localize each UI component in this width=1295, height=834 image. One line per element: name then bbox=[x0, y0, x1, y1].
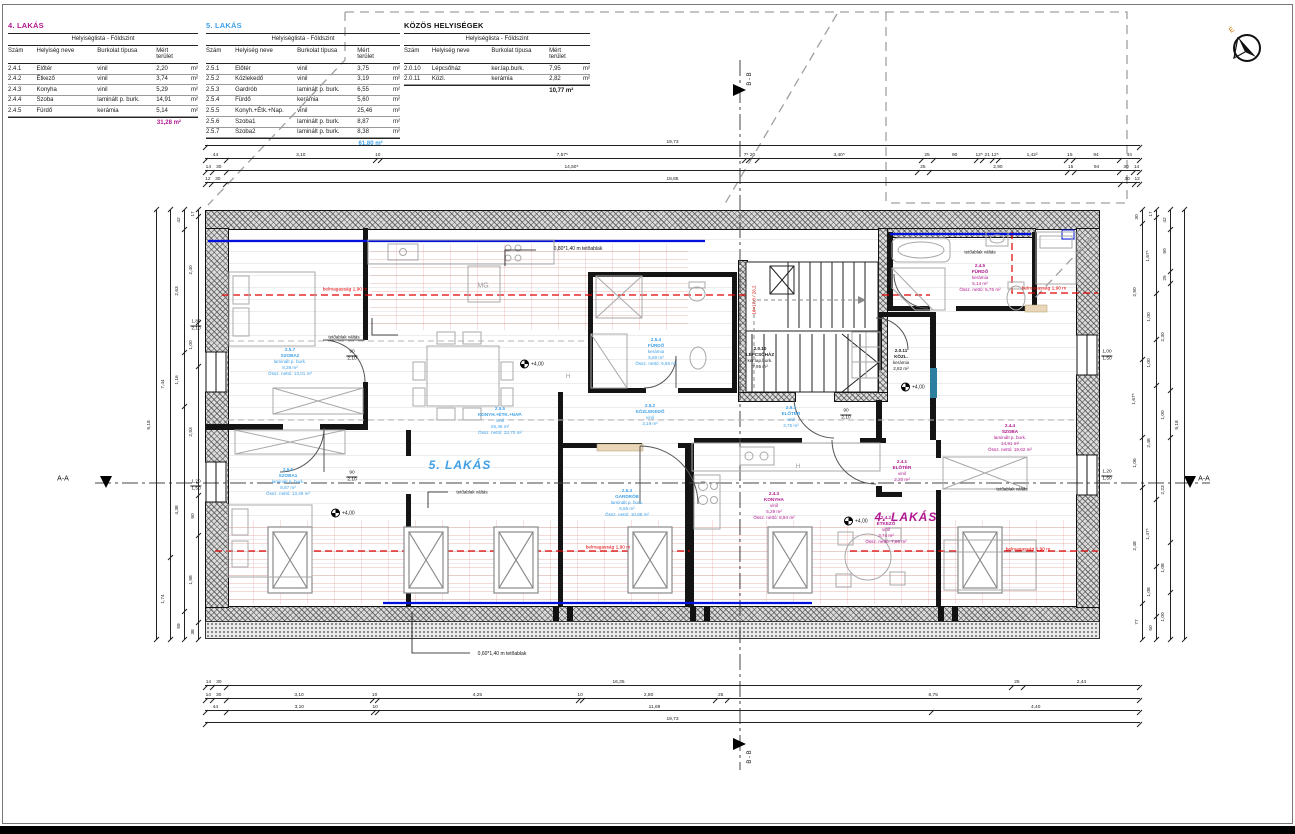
dimension-segment: 14,50⁵ bbox=[226, 161, 917, 171]
dimension-chain: 19,73 bbox=[205, 713, 1140, 722]
dimension-segment: 30 bbox=[212, 676, 226, 686]
table-row: 2.5.1Előtérvinil3,75m² bbox=[206, 64, 400, 75]
annotation: belmagasság 1,90 m bbox=[323, 288, 368, 293]
table-cell: vinil bbox=[97, 76, 156, 83]
table-cell: vinil bbox=[297, 66, 357, 73]
column-header: Mért terület bbox=[357, 48, 384, 61]
room-detail: Össz. nettó: 8,94 m² bbox=[753, 515, 794, 521]
room-label: 2.4.5FÜRDŐkerámia5,14 m²Össz. nettó: 5,7… bbox=[959, 263, 1000, 293]
dimension-segment: 15 bbox=[1067, 161, 1074, 171]
dimension-segment: 1,08 bbox=[1160, 543, 1171, 594]
teal-window-fill bbox=[930, 368, 937, 398]
toilet bbox=[689, 287, 705, 301]
room-detail: 2,82 m² bbox=[893, 366, 909, 372]
table-total: 31,28 m² bbox=[8, 117, 198, 127]
dimension-chain-vertical: 4290252,301,002,231,081,00 bbox=[1160, 210, 1170, 640]
table-cell: 5,29 bbox=[156, 87, 183, 94]
table-row: 2.4.5Fürdőkerámia5,14m² bbox=[8, 106, 198, 117]
dimension-segment: 3,10 bbox=[226, 689, 372, 699]
opening-width: 1,80 bbox=[190, 320, 201, 326]
table-cell: 5,60 bbox=[357, 97, 384, 104]
dimension-value: 1,06 bbox=[1133, 458, 1138, 467]
dimension-segment: 44 bbox=[205, 149, 226, 159]
opening-dimension: 902,10 bbox=[840, 409, 851, 422]
dimension-value: 15 bbox=[1068, 165, 1073, 170]
dimension-value: 14 bbox=[206, 693, 211, 698]
opening-dimension: 902,10 bbox=[346, 471, 357, 484]
dimension-value: 30 bbox=[215, 177, 220, 182]
dimension-segment: 14 bbox=[205, 161, 212, 171]
table-row: 2.0.11Közl.kerámia2,82m² bbox=[404, 75, 590, 86]
bottom-black-bar bbox=[0, 826, 1295, 834]
table-cell: Étkező bbox=[37, 76, 98, 83]
dimension-value: 14 bbox=[1134, 165, 1139, 170]
dimension-chain: 443,101011,694,40 bbox=[205, 701, 1140, 710]
dimension-segment: 38 bbox=[188, 623, 199, 640]
table-cell: 2.5.5 bbox=[206, 108, 235, 115]
opening-height: 1,50 bbox=[1101, 476, 1112, 483]
column-header: Burkolat típusa bbox=[297, 48, 357, 61]
lintel-strip-2 bbox=[1025, 305, 1047, 312]
table-subtitle: Helyiséglista - Földszint bbox=[404, 33, 590, 46]
dimension-segment: 16,35 bbox=[226, 676, 1011, 686]
dimension-segment: 7,44 bbox=[160, 210, 171, 558]
table-subtitle: Helyiséglista - Földszint bbox=[8, 33, 198, 46]
dimension-value: 1,00 bbox=[1161, 612, 1166, 621]
table-cell: laminált p. burk. bbox=[297, 87, 357, 94]
room-label: 2.5.7SZOBA2laminált p. burk.8,38 m²Össz.… bbox=[268, 347, 312, 377]
dimension-segment: 3,10 bbox=[226, 149, 375, 159]
table-row: 2.5.6Szoba1laminált p. burk.8,87m² bbox=[206, 117, 400, 128]
dimension-value: 2,63 bbox=[175, 287, 180, 296]
table-header-row: SzámHelyiség neveBurkolat típusaMért ter… bbox=[206, 46, 400, 64]
table-cell: Közl. bbox=[432, 76, 492, 83]
dimension-segment: 25 bbox=[921, 149, 933, 159]
dimension-segment: 2,90 bbox=[929, 161, 1067, 171]
dimension-segment: 4,25 bbox=[377, 689, 578, 699]
elevation-marker: +4,00 bbox=[520, 360, 544, 369]
dimension-value: 11,69 bbox=[649, 705, 661, 710]
dimension-chain: 123018,853012 bbox=[205, 173, 1140, 182]
table-cell: 2.4.1 bbox=[8, 66, 37, 73]
dimension-value: 44 bbox=[213, 153, 218, 158]
dimension-value: 1,67⁵ bbox=[1132, 393, 1137, 404]
room-label: 2.4.2ÉTKEZŐvinil3,74 m²Össz. nettó: 7,86… bbox=[865, 515, 906, 545]
table-cell: Lépcsőház bbox=[432, 66, 492, 73]
table-total: 10,77 m² bbox=[404, 85, 590, 95]
table-cell: m² bbox=[384, 108, 400, 115]
table-cell: 2.4.4 bbox=[8, 97, 37, 104]
room-detail: 7,95 m² bbox=[746, 364, 774, 370]
table-cell: Gardrób bbox=[235, 87, 297, 94]
table-cell: 5,14 bbox=[156, 108, 183, 115]
dimension-segment: 50 bbox=[1146, 617, 1157, 640]
annotation: belmagasság 1,90 m bbox=[1022, 287, 1067, 292]
dimension-value: 19,73 bbox=[666, 140, 678, 145]
table-cell: Előtér bbox=[37, 66, 98, 73]
elevation-marker: +4,00 bbox=[331, 509, 355, 518]
dimension-value: 14 bbox=[206, 165, 211, 170]
table-title: 5. LAKÁS bbox=[206, 22, 400, 30]
table-cell: 2.0.10 bbox=[404, 66, 432, 73]
opening-dimension: 1,201,50 bbox=[1101, 470, 1112, 483]
room-label: 2.4.3KONYHAvinil5,29 m²Össz. nettó: 8,94… bbox=[753, 491, 794, 521]
table-row: 2.4.2Étkezővinil3,74m² bbox=[8, 75, 198, 86]
dimension-value: 18,85 bbox=[666, 177, 678, 182]
room-detail: Össz. nettó: 19,62 m² bbox=[988, 447, 1032, 453]
dimension-value: 90 bbox=[1163, 248, 1168, 253]
table-cell: Előtér bbox=[235, 66, 297, 73]
dimension-value: 4,38 bbox=[175, 505, 180, 514]
dimension-segment: 7,57⁵ bbox=[380, 149, 744, 159]
dimension-segment: 25 bbox=[1160, 272, 1171, 284]
table-cell: 6,55 bbox=[357, 87, 384, 94]
dimension-chain-vertical: 171,67⁵1,001,002,481,47⁵1,0850 bbox=[1146, 210, 1156, 640]
table-cell: vinil bbox=[97, 87, 156, 94]
annotation: A-A bbox=[57, 476, 69, 483]
dimension-value: 25 bbox=[924, 153, 929, 158]
dimension-value: 38 bbox=[191, 629, 196, 634]
dimension-segment: 1,08 bbox=[1146, 567, 1157, 617]
room-detail: Össz. nettó: 7,86 m² bbox=[865, 539, 906, 545]
table-cell: m² bbox=[384, 76, 400, 83]
dimension-segment: 1,00 bbox=[1160, 391, 1171, 438]
dimension-segment: 90 bbox=[188, 496, 199, 536]
annotation: belmagasság 1,90 m bbox=[1006, 548, 1051, 553]
dimension-segment: 1,67⁵ bbox=[1146, 218, 1157, 295]
room-detail: Össz. nettó: 10,88 m² bbox=[605, 512, 649, 518]
dimension-value: 17 bbox=[1149, 211, 1154, 216]
table-cell: 2.5.3 bbox=[206, 87, 235, 94]
dimension-value: 14,50⁵ bbox=[564, 165, 578, 170]
dimension-value: 1,08 bbox=[1161, 563, 1166, 572]
dimension-value: 2,40 bbox=[189, 266, 194, 275]
dimension-value: 94 bbox=[1093, 153, 1098, 158]
dimension-value: 7,44 bbox=[161, 380, 166, 389]
benchmark-icon bbox=[901, 383, 910, 392]
dimension-value: 3,10 bbox=[294, 693, 303, 698]
table-cell: Szoba bbox=[37, 97, 98, 104]
opening-height: 2,10 bbox=[346, 477, 357, 484]
dimension-segment: 11,69 bbox=[377, 701, 931, 711]
elevation-value: +4,00 bbox=[912, 384, 925, 390]
dimension-segment: 14 bbox=[205, 676, 212, 686]
annotation: 0,60*1,40 m tetőablak bbox=[478, 651, 527, 657]
room-label: 2.0.10LÉPCSŐHÁZker.lap.burk.7,95 m² bbox=[746, 346, 774, 370]
column-header: Mért terület bbox=[549, 48, 575, 61]
dimension-value: 1,00 bbox=[1147, 313, 1152, 322]
table-cell: m² bbox=[183, 66, 198, 73]
dimension-value: 2,90 bbox=[1133, 287, 1138, 296]
dimension-segment: 4,38 bbox=[174, 407, 185, 612]
dimension-value: 2,30 bbox=[1161, 333, 1166, 342]
dimension-segment: 9,18 bbox=[146, 210, 157, 640]
elevation-marker: +4,00 bbox=[901, 383, 925, 392]
room-detail: Össz. nettó: 6,55 m² bbox=[635, 361, 676, 367]
opening-height: 2,10 bbox=[190, 326, 201, 333]
dimension-value: 3,10 bbox=[295, 705, 304, 710]
column-header: Burkolat típusa bbox=[97, 48, 156, 61]
dimension-value: 9,18 bbox=[1175, 420, 1180, 429]
sink bbox=[690, 347, 706, 369]
dimension-value: 12 bbox=[1134, 177, 1139, 182]
room-label: 2.5.5KONYH.+ÉTK.+NAP.vinil25,46 m²Össz. … bbox=[478, 406, 522, 436]
dimension-value: 2,23 bbox=[1161, 486, 1166, 495]
opening-width: 1,00 bbox=[1101, 350, 1112, 356]
dimension-segment: 30 bbox=[1119, 161, 1133, 171]
dimension-value: 16,35 bbox=[612, 680, 624, 685]
dimension-chain-vertical: 422,631,164,3859 bbox=[174, 210, 184, 640]
room-label: 2.4.1ELŐTÉRvinil2,20 m² bbox=[893, 459, 912, 483]
dimension-segment: 25 bbox=[1011, 676, 1023, 686]
dimension-segment: 1,47⁵ bbox=[1146, 500, 1157, 567]
column-header bbox=[575, 48, 590, 61]
room-label: 2.5.4FÜRDŐkerámia5,60 m²Össz. nettó: 6,5… bbox=[635, 337, 676, 367]
column-header: Burkolat típusa bbox=[491, 48, 549, 61]
dimension-value: 77 bbox=[1135, 619, 1140, 624]
dimension-segment: 2,90 bbox=[1132, 224, 1143, 360]
dimension-segment: 30 bbox=[211, 173, 225, 183]
dimension-chain-vertical: 172,401,002,93901,9838 bbox=[188, 210, 198, 640]
dimension-value: 1,98 bbox=[189, 575, 194, 584]
dimension-value: 59 bbox=[177, 623, 182, 628]
column-header bbox=[384, 48, 400, 61]
dimension-segment: 25 bbox=[715, 689, 727, 699]
annotation: H bbox=[796, 464, 800, 470]
dimension-segment: 30 bbox=[212, 161, 226, 171]
table-cell: m² bbox=[384, 66, 400, 73]
drawing-sheet: É 4. LAKÁSHelyiséglista - FöldszintSzámH… bbox=[0, 0, 1295, 834]
table-title: 4. LAKÁS bbox=[8, 22, 198, 30]
dimension-segment: 2,40 bbox=[188, 217, 199, 323]
room-label: 2.5.6SZOBA1laminált p. burk.8,87 m²Össz.… bbox=[266, 467, 310, 497]
elevation-value: +4,00 bbox=[855, 518, 868, 524]
dimension-segment: 1,00 bbox=[1146, 340, 1157, 386]
table-row: 2.0.10Lépcsőházker.lap.burk.7,95m² bbox=[404, 64, 590, 75]
table-cell: m² bbox=[575, 76, 590, 83]
table-cell: 2.4.5 bbox=[8, 108, 37, 115]
table-cell: m² bbox=[183, 87, 198, 94]
dimension-segment: 19,73 bbox=[205, 713, 1140, 723]
table-cell: Szoba1 bbox=[235, 119, 297, 126]
dimension-segment: 30 bbox=[212, 689, 226, 699]
dimension-segment: 3,10 bbox=[226, 701, 373, 711]
table-row: 2.4.4Szobalaminált p. burk.14,91m² bbox=[8, 96, 198, 107]
column-header: Helyiség neve bbox=[235, 48, 297, 61]
dimension-segment: 94 bbox=[1073, 149, 1118, 159]
dimension-segment: 20 bbox=[748, 149, 758, 159]
table-cell: 2,20 bbox=[156, 66, 183, 73]
table-cell: vinil bbox=[97, 66, 156, 73]
dimension-chain: 143016,35252,44 bbox=[205, 676, 1140, 685]
dimension-segment: 2,30 bbox=[1160, 284, 1171, 392]
annotation: 16×17,8 / 26,2 bbox=[752, 286, 757, 315]
dimension-chain: 143014,50⁵252,9015943014 bbox=[205, 161, 1140, 170]
table-cell: Fürdő bbox=[37, 108, 98, 115]
dimension-segment: 15 bbox=[1066, 149, 1073, 159]
column-header: Szám bbox=[206, 48, 235, 61]
room-detail: Össz. nettó: 33,70 m² bbox=[478, 430, 522, 436]
table-cell: vinil bbox=[297, 76, 357, 83]
dimension-segment: 2,93 bbox=[188, 367, 199, 496]
dimension-value: 2,80 bbox=[644, 693, 653, 698]
dimension-segment: 2,80 bbox=[582, 689, 714, 699]
apartment-label: 5. LAKÁS bbox=[429, 458, 492, 472]
annotation: B - B bbox=[747, 750, 753, 763]
dimension-segment: 90 bbox=[933, 149, 976, 159]
dimension-value: 42 bbox=[177, 217, 182, 222]
dimension-chain-vertical: 9,18 bbox=[146, 210, 156, 640]
dimension-segment: 2,44 bbox=[1023, 676, 1140, 686]
opening-height: 2,10 bbox=[840, 415, 851, 422]
column-header: Mért terület bbox=[156, 48, 183, 61]
dimension-value: 1,74 bbox=[161, 595, 166, 604]
annotation: tetőablak váltás bbox=[328, 335, 359, 340]
table-cell: m² bbox=[384, 119, 400, 126]
annotation: B - B bbox=[747, 72, 753, 85]
elevation-marker: +4,00 bbox=[844, 517, 868, 526]
dimension-segment: 59 bbox=[174, 612, 185, 640]
elevation-value: +4,00 bbox=[342, 510, 355, 516]
dimension-value: 8,75 bbox=[929, 693, 938, 698]
dimension-value: 44 bbox=[1127, 153, 1132, 158]
room-detail: Össz. nettó: 5,76 m² bbox=[959, 287, 1000, 293]
table-cell: m² bbox=[183, 97, 198, 104]
column-header bbox=[183, 48, 198, 61]
dimension-value: 1,67⁵ bbox=[1146, 250, 1151, 261]
dimension-segment: 3,40⁵ bbox=[757, 149, 921, 159]
dimension-value: 1,47⁵ bbox=[1146, 528, 1151, 539]
dimension-segment: 77 bbox=[1132, 604, 1143, 640]
dimension-value: 4,25 bbox=[473, 693, 482, 698]
table-cell: 2.5.4 bbox=[206, 97, 235, 104]
column-header: Szám bbox=[8, 48, 37, 61]
table-cell: m² bbox=[384, 87, 400, 94]
column-header: Helyiség neve bbox=[432, 48, 492, 61]
room-label: 2.5.2KÖZLEKEDŐvinil3,19 m² bbox=[636, 403, 665, 427]
dimension-value: 44 bbox=[213, 705, 218, 710]
dimension-segment: 1,42² bbox=[998, 149, 1066, 159]
dimension-segment: 4,40 bbox=[931, 701, 1140, 711]
column-header: Helyiség neve bbox=[37, 48, 98, 61]
room-label: 2.5.1ELŐTÉRvinil3,75 m² bbox=[782, 405, 801, 429]
table-cell: 3,19 bbox=[357, 76, 384, 83]
table-cell: Konyha bbox=[37, 87, 98, 94]
table-cell: 3,75 bbox=[357, 66, 384, 73]
dimension-segment: 1,00 bbox=[1160, 593, 1171, 640]
annotation: tetőablak váltás bbox=[964, 250, 995, 255]
table-cell: 2.5.7 bbox=[206, 129, 235, 136]
dimension-segment: 1,74 bbox=[160, 558, 171, 640]
dimension-segment: 19,73 bbox=[205, 136, 1140, 146]
dimension-value: 1,42² bbox=[1027, 153, 1038, 158]
table-cell: 8,38 bbox=[357, 129, 384, 136]
bed bbox=[229, 272, 315, 346]
opening-dimension: 902,10 bbox=[346, 350, 357, 363]
table-cell: 7,95 bbox=[549, 66, 575, 73]
dimension-value: 3,40⁵ bbox=[834, 153, 845, 158]
dimension-value: 42 bbox=[1163, 217, 1168, 222]
schedule-table: 4. LAKÁSHelyiséglista - FöldszintSzámHel… bbox=[8, 22, 198, 127]
dimension-value: 2,93 bbox=[189, 427, 194, 436]
benchmark-icon bbox=[520, 360, 529, 369]
dining-table bbox=[427, 346, 499, 406]
dimension-value: 1,00 bbox=[1161, 410, 1166, 419]
room-detail: 3,75 m² bbox=[782, 423, 801, 429]
table-title: KÖZÖS HELYISÉGEK bbox=[404, 22, 590, 30]
table-cell: kerámia bbox=[97, 108, 156, 115]
dimension-value: 2,44 bbox=[1077, 680, 1086, 685]
table-cell: vinil bbox=[297, 108, 357, 115]
table-cell: ker.lap.burk. bbox=[491, 66, 549, 73]
opening-dimension: 1,802,10 bbox=[190, 320, 201, 333]
dimension-value: 90 bbox=[952, 153, 957, 158]
dimension-value: 21 bbox=[984, 153, 989, 158]
table-cell: m² bbox=[183, 108, 198, 115]
dimension-chain-vertical: 9,18 bbox=[1174, 210, 1184, 640]
dimension-segment: 12 bbox=[1134, 173, 1140, 183]
table-cell: m² bbox=[183, 76, 198, 83]
table-row: 2.5.5Konyh.+Étk.+Nap.vinil25,46m² bbox=[206, 106, 400, 117]
bottom-jambs bbox=[553, 606, 958, 621]
table-cell: laminált p. burk. bbox=[297, 129, 357, 136]
opening-height: 2,10 bbox=[346, 356, 357, 363]
north-compass-icon: É bbox=[1227, 24, 1260, 61]
dimension-value: 30 bbox=[216, 165, 221, 170]
annotation: belmagasság 1,90 m bbox=[586, 546, 631, 551]
dimension-segment: 94 bbox=[1074, 161, 1119, 171]
table-cell: Közlekedő bbox=[235, 76, 297, 83]
dimension-value: 1,16 bbox=[175, 375, 180, 384]
dimension-value: 1,00 bbox=[189, 341, 194, 350]
room-detail: Össz. nettó: 13,01 m² bbox=[268, 371, 312, 377]
dimension-value: 2,90 bbox=[993, 165, 1002, 170]
table-cell: Fürdő bbox=[235, 97, 297, 104]
table-cell: m² bbox=[384, 97, 400, 104]
dimension-segment: 2,63 bbox=[174, 230, 185, 353]
column-header: Szám bbox=[404, 48, 432, 61]
dimension-segment: 30 bbox=[1120, 173, 1134, 183]
shower bbox=[892, 268, 945, 310]
opening-width: 1,20 bbox=[1101, 470, 1112, 476]
table-cell: m² bbox=[575, 66, 590, 73]
dimension-value: 25 bbox=[1014, 680, 1019, 685]
dimension-chain: 443,10107,57⁵7⁵203,40⁵259012⁵2112⁵1,42²1… bbox=[205, 149, 1140, 158]
table-row: 2.5.3Gardróblaminált p. burk.6,55m² bbox=[206, 85, 400, 96]
elevation-value: +4,00 bbox=[531, 361, 544, 367]
table-cell: kerámia bbox=[491, 76, 549, 83]
dimension-value: 94 bbox=[1094, 165, 1099, 170]
dimension-value: 25 bbox=[920, 165, 925, 170]
staircase bbox=[746, 262, 878, 392]
dimension-segment: 8,75 bbox=[727, 689, 1140, 699]
schedule-table: KÖZÖS HELYISÉGEKHelyiséglista - Földszin… bbox=[404, 22, 590, 95]
annotation: 0,80*1,40 m tetőablak bbox=[554, 246, 603, 252]
dimension-value: 30 bbox=[1123, 165, 1128, 170]
dimension-value: 25 bbox=[1163, 275, 1168, 280]
opening-height: 1,50 bbox=[190, 486, 201, 493]
room-detail: Össz. nettó: 13,49 m² bbox=[266, 491, 310, 497]
table-cell: m² bbox=[384, 129, 400, 136]
kitchen-counter bbox=[692, 443, 880, 471]
dimension-segment: 25 bbox=[917, 161, 929, 171]
dimension-segment: 42 bbox=[1160, 210, 1171, 230]
dimension-value: 3,10 bbox=[296, 153, 305, 158]
opening-height: 1,50 bbox=[1101, 356, 1112, 363]
table-cell: 2.5.1 bbox=[206, 66, 235, 73]
dimension-segment: 30 bbox=[1132, 210, 1143, 224]
dimension-value: 19,73 bbox=[666, 717, 678, 722]
